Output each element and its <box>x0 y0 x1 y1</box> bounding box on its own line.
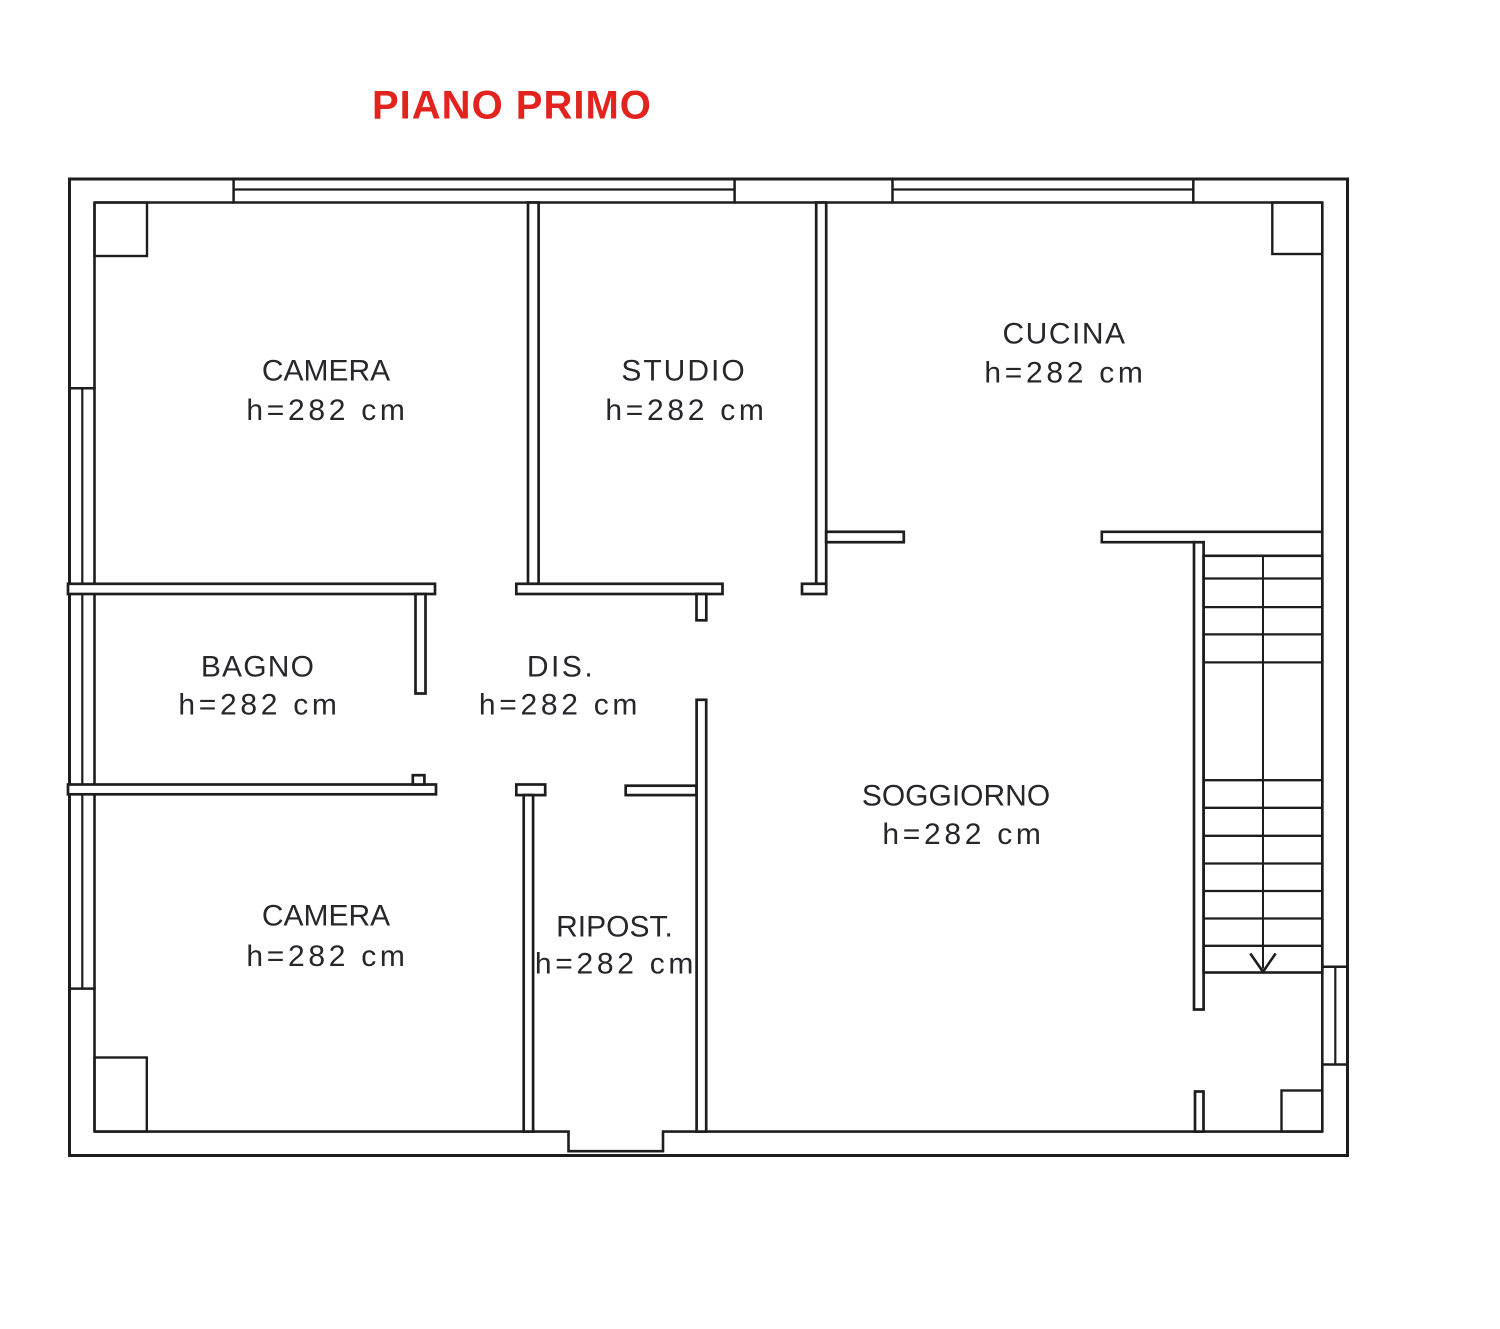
svg-text:BAGNO: BAGNO <box>201 650 315 683</box>
svg-text:CAMERA: CAMERA <box>262 899 390 932</box>
svg-text:CUCINA: CUCINA <box>1002 318 1126 351</box>
svg-text:h=282 cm: h=282 cm <box>535 948 697 981</box>
svg-text:h=282 cm: h=282 cm <box>984 357 1146 390</box>
svg-text:h=282 cm: h=282 cm <box>246 940 408 973</box>
svg-text:h=282 cm: h=282 cm <box>178 689 340 722</box>
svg-text:h=282 cm: h=282 cm <box>882 818 1044 851</box>
svg-text:h=282 cm: h=282 cm <box>479 689 641 722</box>
svg-text:DIS.: DIS. <box>527 651 595 684</box>
svg-text:h=282 cm: h=282 cm <box>246 394 408 427</box>
svg-text:PIANO PRIMO: PIANO PRIMO <box>372 84 652 128</box>
svg-text:SOGGIORNO: SOGGIORNO <box>862 780 1050 813</box>
svg-text:h=282 cm: h=282 cm <box>605 394 767 427</box>
svg-text:STUDIO: STUDIO <box>621 355 746 388</box>
svg-text:CAMERA: CAMERA <box>262 354 390 387</box>
svg-text:RIPOST.: RIPOST. <box>556 910 673 943</box>
